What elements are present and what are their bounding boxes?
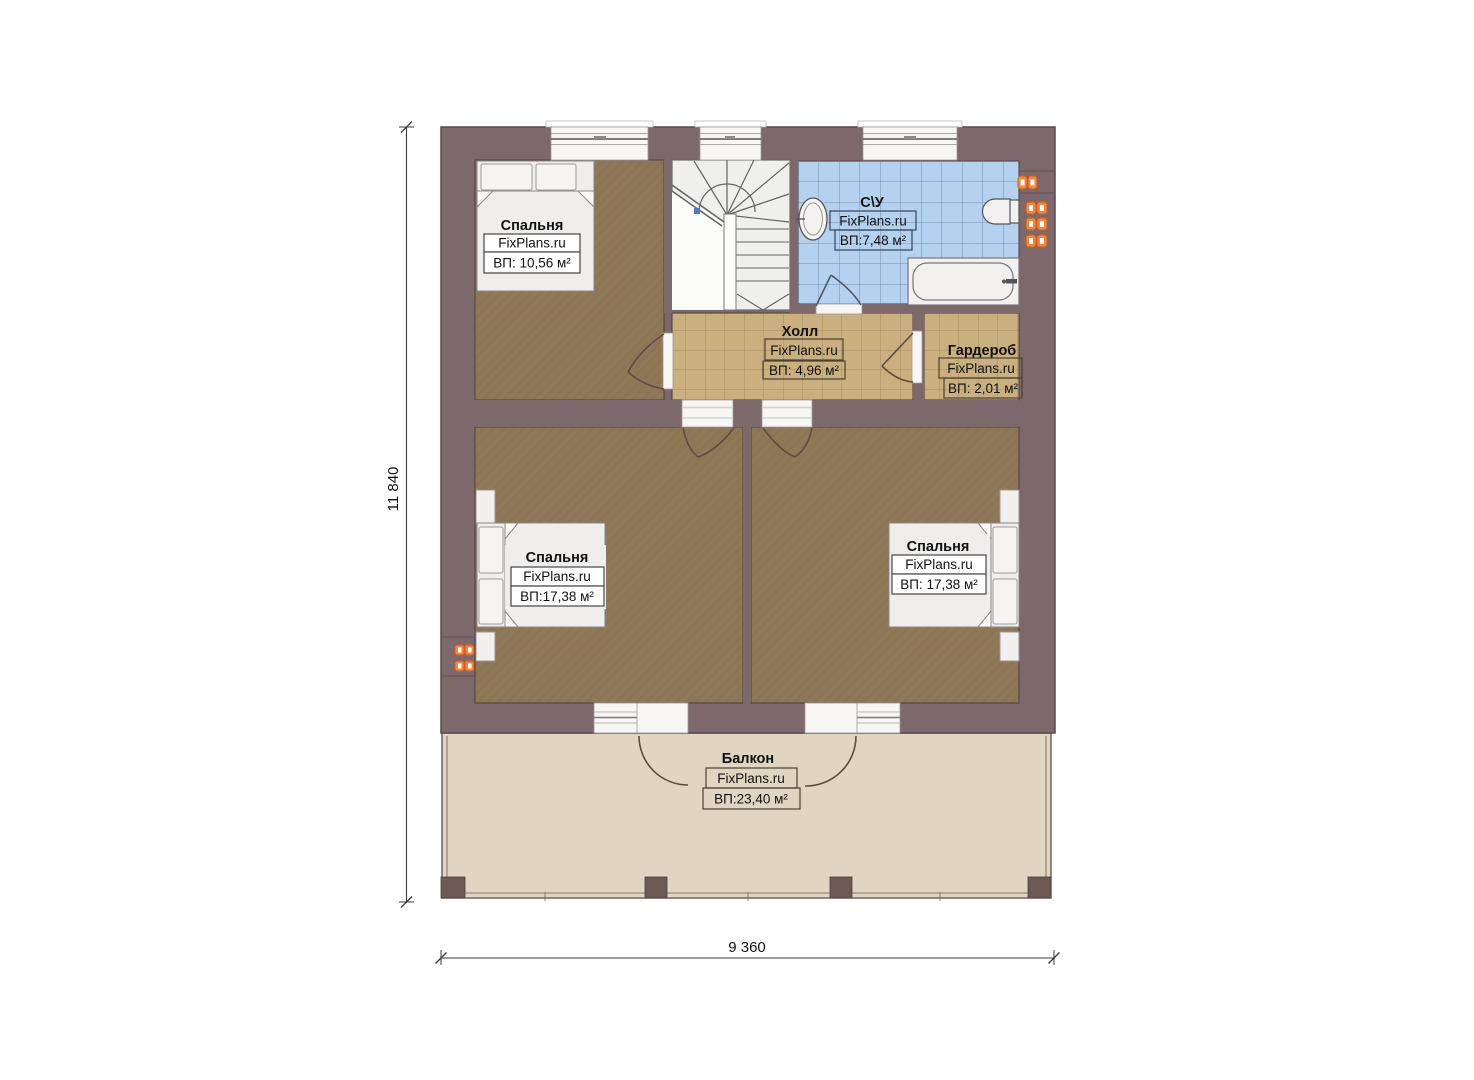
svg-text:С\У: С\У — [860, 195, 885, 211]
svg-text:ВП:7,48 м²: ВП:7,48 м² — [840, 233, 907, 248]
svg-text:ВП: 10,56 м²: ВП: 10,56 м² — [493, 256, 571, 271]
svg-text:FixPlans.ru: FixPlans.ru — [839, 214, 907, 229]
svg-text:FixPlans.ru: FixPlans.ru — [947, 361, 1015, 376]
svg-text:FixPlans.ru: FixPlans.ru — [523, 569, 591, 584]
svg-text:ВП:17,38 м²: ВП:17,38 м² — [520, 589, 594, 604]
svg-text:FixPlans.ru: FixPlans.ru — [770, 343, 838, 358]
svg-text:Спальня: Спальня — [907, 539, 970, 555]
svg-text:Балкон: Балкон — [722, 751, 774, 767]
svg-text:Гардероб: Гардероб — [948, 343, 1017, 359]
svg-text:FixPlans.ru: FixPlans.ru — [905, 557, 973, 572]
svg-text:FixPlans.ru: FixPlans.ru — [717, 771, 785, 786]
svg-text:Спальня: Спальня — [501, 218, 564, 234]
svg-text:Холл: Холл — [782, 324, 818, 340]
svg-text:9 360: 9 360 — [728, 939, 766, 956]
svg-text:ВП:23,40 м²: ВП:23,40 м² — [714, 792, 788, 807]
svg-text:ВП: 17,38 м²: ВП: 17,38 м² — [900, 577, 978, 592]
svg-text:ВП: 4,96 м²: ВП: 4,96 м² — [769, 363, 840, 378]
svg-text:ВП: 2,01 м²: ВП: 2,01 м² — [948, 381, 1019, 396]
svg-text:11 840: 11 840 — [385, 467, 402, 512]
svg-text:FixPlans.ru: FixPlans.ru — [498, 236, 566, 251]
svg-text:Спальня: Спальня — [526, 550, 589, 566]
